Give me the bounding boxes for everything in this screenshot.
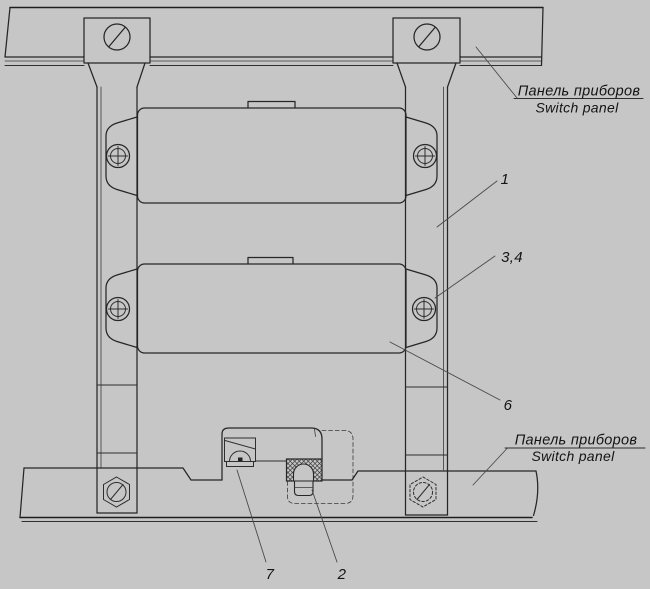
technical-drawing-page: Панель приборов Switch panel Панель приб…: [0, 0, 650, 589]
callout-label-7: 7: [266, 566, 275, 583]
callout-label-1: 1: [501, 171, 510, 188]
panel-label-bottom-en: Switch panel: [532, 448, 616, 464]
callout-label-3-4: 3,4: [501, 249, 523, 266]
panel-label-top-en: Switch panel: [536, 100, 620, 116]
cross-screw-icon: [413, 298, 436, 321]
switch-panel-mounting-diagram: Панель приборов Switch panel Панель приб…: [0, 0, 650, 589]
callout-label-6: 6: [504, 397, 513, 414]
cross-screw-icon: [107, 145, 130, 168]
panel-label-top-ru: Панель приборов: [518, 84, 641, 100]
cross-screw-icon: [107, 298, 130, 321]
callout-label-2: 2: [337, 566, 347, 583]
panel-label-bottom-ru: Панель приборов: [515, 433, 638, 449]
bulb-base: [295, 481, 314, 496]
cross-screw-icon: [414, 145, 437, 168]
bulb-dome: [294, 464, 314, 481]
lamp-filament-mark: [238, 458, 243, 462]
